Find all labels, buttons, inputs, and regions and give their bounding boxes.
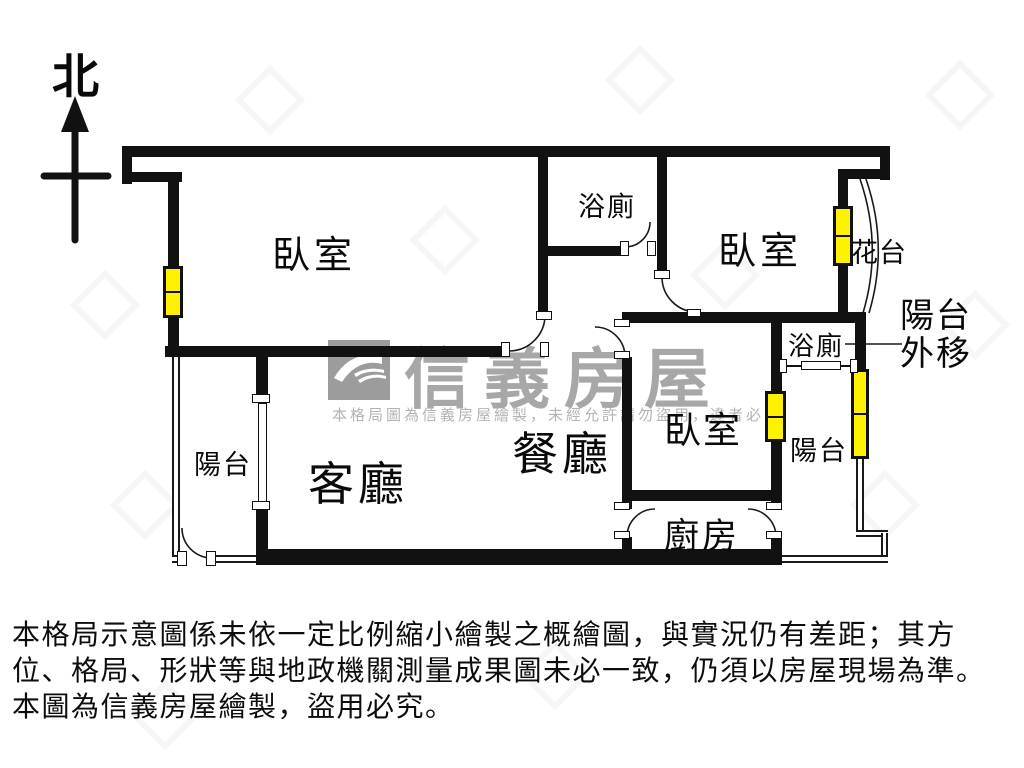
north-arrow-icon [44, 96, 108, 240]
room-label-balcony-moved: 陽台 外移 [900, 298, 972, 374]
room-label-bedroom-3: 臥室 [664, 400, 742, 454]
door-hinge [687, 309, 701, 317]
door-hinge [654, 270, 670, 279]
door-hinge [647, 241, 656, 256]
door-hinge [766, 531, 782, 539]
wall-segment [657, 146, 667, 277]
window [851, 369, 869, 459]
room-label-bathroom-2: 浴廁 [788, 326, 844, 363]
door-hinge [850, 359, 858, 373]
room-label-bedroom-1: 臥室 [272, 224, 356, 279]
room-label-balcony-right: 陽台 [790, 429, 848, 468]
door-hinge [766, 502, 782, 510]
wall-segment [622, 490, 782, 501]
wall-segment [771, 323, 782, 393]
door-arc [627, 509, 655, 537]
room-label-bedroom-2: 臥室 [718, 220, 802, 275]
room-label-dining-room: 餐廳 [512, 418, 612, 484]
wall-segment [165, 346, 508, 357]
door-hinge [536, 311, 552, 320]
door-hinge [206, 551, 216, 566]
wall-segment [122, 146, 890, 157]
floorplan-canvas: 信義房屋 本格局圖為信義房屋繪製，未經允許請勿盜用，違者必究 [0, 0, 1024, 768]
room-label-bathroom-1: 浴廁 [578, 185, 636, 224]
door-hinge [540, 342, 549, 357]
wall-segment [538, 146, 548, 318]
door-hinge [614, 319, 630, 327]
door-hinge [252, 394, 270, 403]
door-hinge [620, 241, 629, 256]
window [765, 391, 786, 442]
wall-segment [256, 509, 268, 565]
door-hinge [779, 359, 787, 373]
wall-segment [168, 172, 179, 272]
door-hinge [614, 502, 630, 510]
balcony-moved-line-1: 陽台 [900, 298, 972, 336]
room-label-kitchen: 廚房 [664, 508, 740, 559]
wall-segment [771, 440, 782, 509]
window [833, 206, 853, 266]
disclaimer-line-3: 本圖為信義房屋繪製，盜用必究。 [12, 690, 1014, 726]
room-label-flower-stand: 花台 [851, 231, 907, 270]
window [163, 266, 183, 318]
balcony-moved-line-2: 外移 [900, 336, 972, 374]
disclaimer-line-2: 位、格局、形狀等與地政機關測量成果圖未必一致，仍須以房屋現場為準。 [12, 654, 1014, 690]
disclaimer-line-1: 本格局示意圖係未依一定比例縮小繪製之概繪圖，與實況仍有差距；其方 [12, 618, 1014, 654]
wall-segment [256, 353, 268, 397]
door-hinge [501, 342, 510, 357]
wall-segment [543, 246, 625, 256]
wall-segment [622, 357, 632, 509]
room-label-living-room: 客廳 [308, 448, 408, 514]
sliding-door [258, 403, 267, 503]
door-hinge [614, 531, 630, 539]
wall-segment [622, 312, 866, 323]
room-label-balcony-left: 陽台 [194, 443, 252, 482]
door-hinge [252, 501, 270, 510]
north-label: 北 [52, 38, 99, 107]
door-hinge [177, 551, 187, 566]
door-arc [662, 277, 697, 312]
door-hinge [614, 351, 630, 359]
